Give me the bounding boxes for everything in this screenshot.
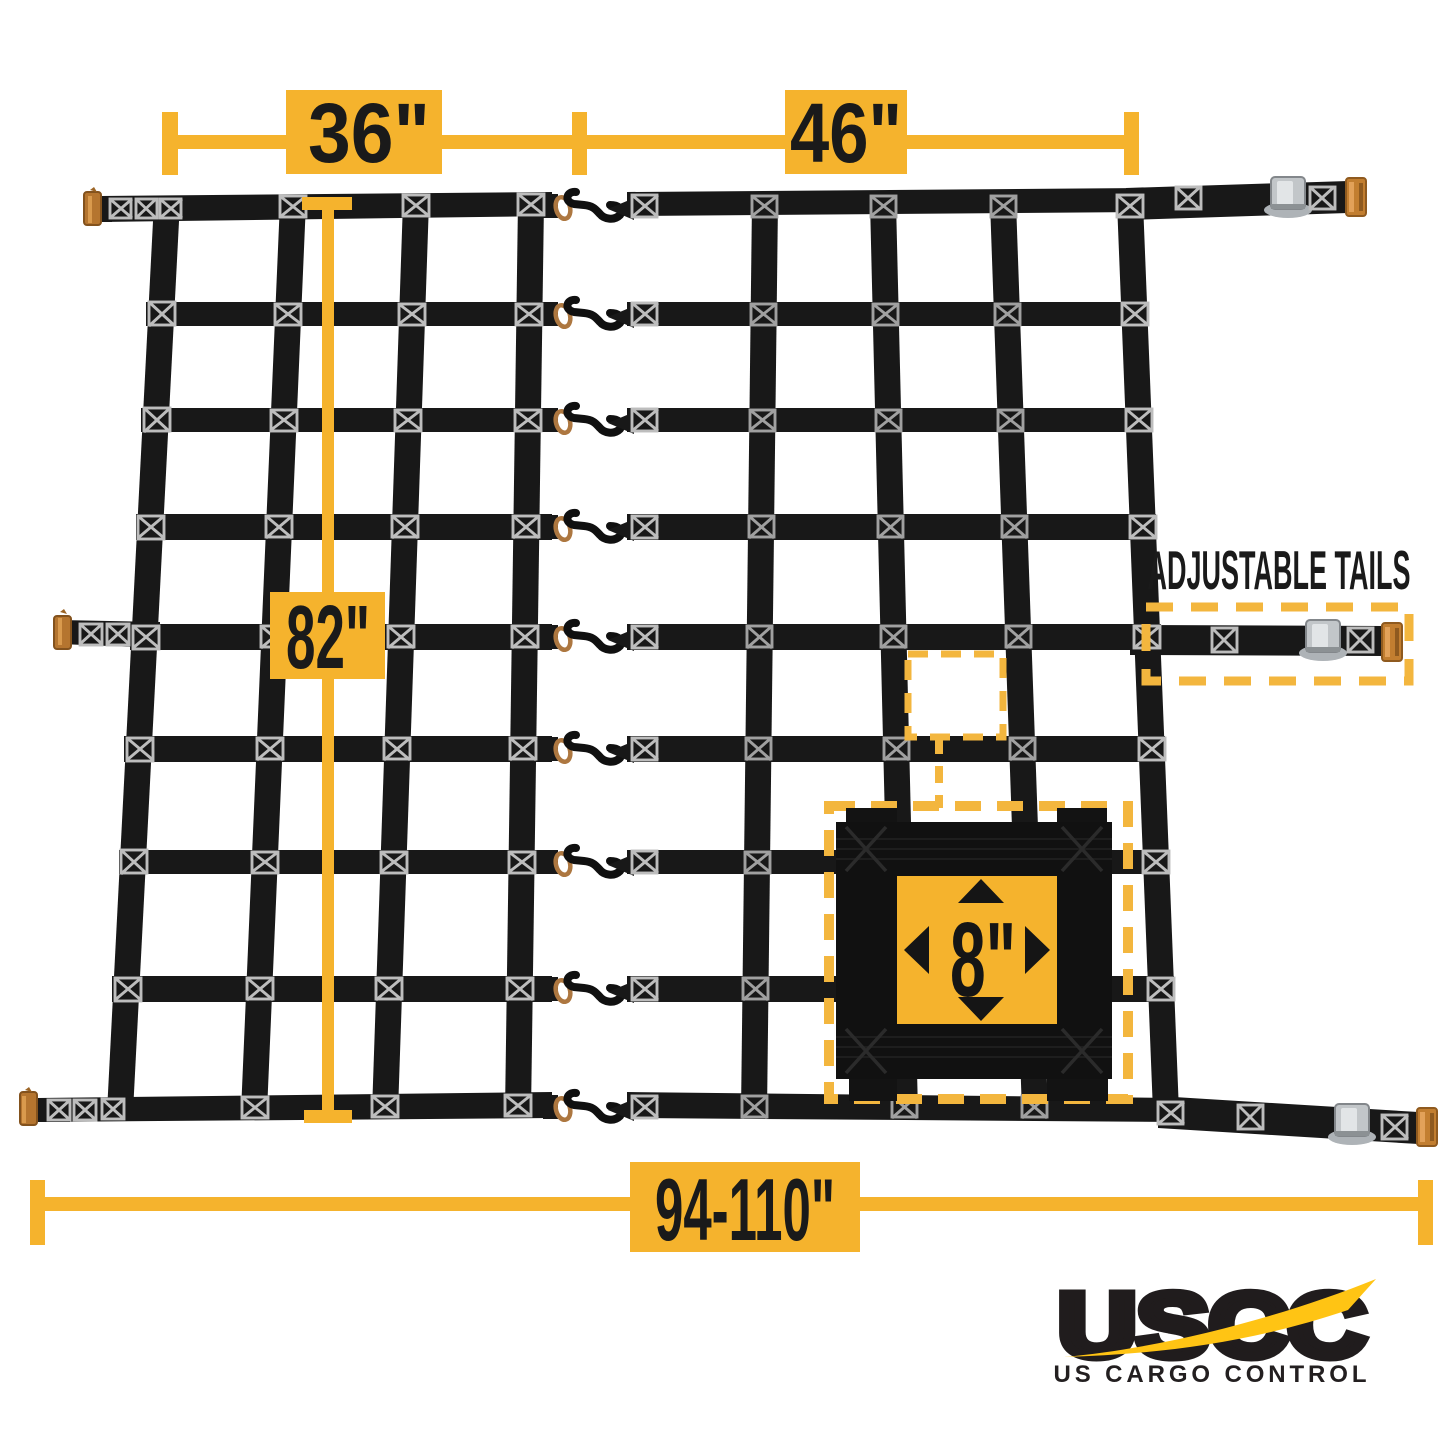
svg-text:82": 82" (286, 588, 370, 688)
svg-text:US CARGO CONTROL: US CARGO CONTROL (1054, 1361, 1367, 1388)
svg-text:ADJUSTABLE TAILS: ADJUSTABLE TAILS (1148, 539, 1411, 601)
svg-text:46": 46" (790, 86, 902, 180)
svg-text:8": 8" (950, 901, 1016, 1019)
svg-text:36": 36" (308, 86, 430, 180)
svg-text:94-110": 94-110" (655, 1160, 835, 1259)
